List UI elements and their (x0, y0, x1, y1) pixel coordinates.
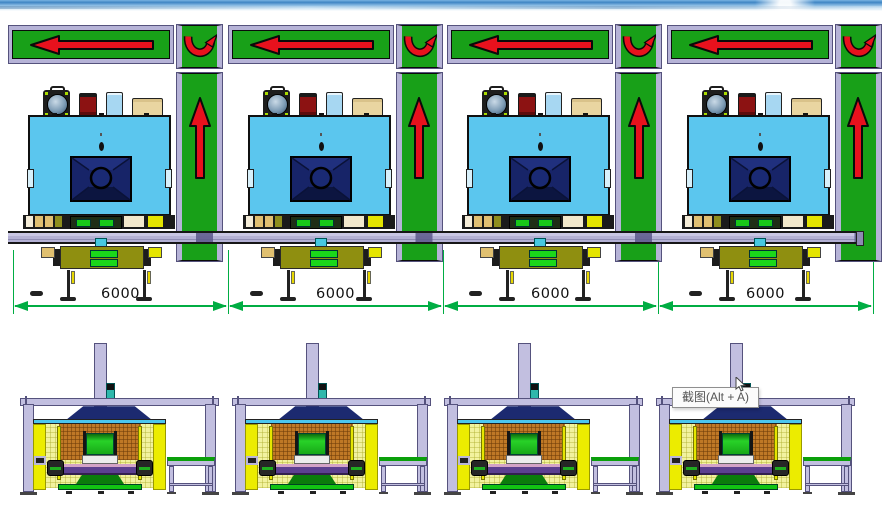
base-foot (552, 491, 558, 494)
base-block (484, 216, 492, 227)
base-center-module (729, 216, 781, 229)
equipment-row (43, 87, 175, 118)
machine-base-band (462, 215, 614, 229)
machine-top-tab (491, 113, 496, 116)
base-foot (734, 491, 740, 494)
base-foot (340, 491, 346, 494)
table-leg (844, 466, 849, 492)
table-leg (169, 466, 174, 492)
table-belt (591, 457, 639, 466)
machine-top-tab (364, 113, 369, 116)
hopper-wedge (278, 405, 364, 420)
gantry-beam (232, 398, 431, 406)
sensor-dot (538, 142, 543, 151)
return-conveyor (667, 25, 833, 64)
machine-body (28, 115, 171, 216)
gantry-foot-left (656, 492, 673, 495)
drive-cylinder-left (471, 460, 488, 476)
green-indicator (76, 219, 91, 227)
base-conveyor (270, 484, 354, 490)
u-turn-arrow-icon (621, 31, 656, 63)
dimension-label: 6000 (443, 286, 658, 303)
table-foot (630, 492, 639, 494)
work-platform (506, 455, 542, 464)
sensor-dot (758, 142, 763, 151)
dimension-line (660, 305, 871, 307)
pump-leds (484, 92, 487, 95)
base-block (714, 216, 721, 227)
base-block (45, 216, 53, 227)
base-block (124, 216, 144, 227)
table-belt (167, 457, 215, 466)
work-platform (294, 455, 330, 464)
base-block (494, 216, 501, 227)
gantry-machine-unit (20, 343, 220, 497)
u-turn-station (397, 25, 442, 68)
gantry-foot-left (444, 492, 461, 495)
arrow-left-icon (464, 33, 596, 57)
side-block-left (41, 247, 55, 258)
table-foot (842, 492, 851, 494)
return-conveyor (447, 25, 613, 64)
base-foot (66, 491, 72, 494)
hmi-panel (246, 456, 258, 465)
gantry-beam (444, 398, 643, 406)
base-block (694, 216, 702, 227)
pump-leds (265, 92, 268, 95)
conveyor-belt (12, 30, 170, 59)
base-block (704, 216, 712, 227)
base-hopper (500, 475, 548, 484)
enclosure-top-rail (669, 419, 802, 424)
hopper-wedge (490, 405, 576, 420)
carrier-assembly (719, 246, 803, 269)
equipment-row (702, 87, 834, 118)
machine-base-band (682, 215, 834, 229)
table-crossbar (381, 483, 425, 486)
transfer-rail (8, 231, 864, 244)
side-block-right (148, 247, 162, 258)
enclosure-frame-right (153, 424, 166, 490)
green-indicator (296, 219, 311, 227)
door-handle-right (385, 169, 392, 188)
base-block (807, 216, 822, 227)
machine-top-tab (803, 113, 808, 116)
table-leg (632, 466, 637, 492)
equipment-row (482, 87, 614, 118)
mouse-cursor-icon (735, 377, 746, 392)
work-platform (718, 455, 754, 464)
machine-window-panel (70, 156, 132, 202)
base-conveyor (58, 484, 142, 490)
base-foot (310, 491, 316, 494)
carriage-beam (268, 464, 356, 475)
table-foot (167, 492, 176, 494)
roll-post-right (114, 431, 117, 458)
machine-top-tab (99, 113, 104, 116)
outfeed-table (167, 457, 215, 494)
green-plate (749, 250, 777, 258)
door-handle-left (466, 169, 473, 188)
conveyor-belt (232, 30, 390, 59)
base-block (148, 216, 163, 227)
pump-leds (45, 92, 48, 95)
green-plate (310, 250, 338, 258)
machine-top-tab (272, 113, 277, 116)
machine-window-panel (290, 156, 352, 202)
carrier-assembly (499, 246, 583, 269)
base-block (563, 216, 583, 227)
belt-roll (86, 433, 114, 455)
machine-window-panel (509, 156, 571, 202)
side-block-left (261, 247, 275, 258)
base-hopper (288, 475, 336, 484)
base-block (685, 216, 692, 227)
table-belt (803, 457, 851, 466)
drive-cylinder-left (683, 460, 700, 476)
enclosure-top-rail (33, 419, 166, 424)
base-block (255, 216, 263, 227)
base-block (35, 216, 43, 227)
table-belt (379, 457, 427, 466)
drive-cylinder-right (348, 460, 365, 476)
gantry-line-row (20, 343, 880, 498)
carriage-beam (692, 464, 780, 475)
pump-dial (267, 94, 288, 115)
base-foot (490, 491, 496, 494)
machine-top-tab (711, 113, 716, 116)
side-block-left (480, 247, 494, 258)
outfeed-table (591, 457, 639, 494)
green-plate (90, 259, 118, 267)
side-block-right (587, 247, 601, 258)
base-foot (702, 491, 708, 494)
table-leg (805, 466, 810, 492)
pump-dial (706, 94, 727, 115)
sensor-dot (319, 142, 324, 151)
u-turn-arrow-icon (402, 31, 437, 63)
base-block (55, 216, 62, 227)
carrier-assembly (60, 246, 144, 269)
table-crossbar (805, 483, 849, 486)
u-turn-arrow-icon (182, 31, 217, 63)
base-block (275, 216, 282, 227)
dimension-label: 6000 (658, 286, 873, 303)
table-leg (420, 466, 425, 492)
green-indicator (515, 219, 530, 227)
dimension-label: 6000 (228, 286, 443, 303)
u-turn-station (836, 25, 881, 68)
equipment-row (263, 87, 395, 118)
pump-leds (704, 92, 707, 95)
machine-body (248, 115, 391, 216)
dimension-line (445, 305, 656, 307)
gantry-machine-unit (232, 343, 432, 497)
roll-post-right (538, 431, 541, 458)
u-turn-station (616, 25, 661, 68)
door-handle-right (824, 169, 831, 188)
base-hopper (76, 475, 124, 484)
base-hopper (712, 475, 760, 484)
table-crossbar (593, 483, 637, 486)
base-center-module (290, 216, 342, 229)
gantry-foot-left (232, 492, 249, 495)
enclosure-top-rail (457, 419, 590, 424)
base-conveyor (482, 484, 566, 490)
green-indicator (319, 219, 334, 227)
arrow-left-icon (684, 33, 816, 57)
roll-post-right (326, 431, 329, 458)
gantry-beam (20, 398, 219, 406)
sky-banner (0, 0, 882, 11)
carriage-beam (56, 464, 144, 475)
arrow-left-icon (25, 33, 157, 57)
base-block (246, 216, 253, 227)
door-handle-left (27, 169, 34, 188)
machine-top-tab (583, 113, 588, 116)
base-block (474, 216, 482, 227)
hopper-wedge (66, 405, 152, 420)
drive-cylinder-left (259, 460, 276, 476)
machine-top-tab (144, 113, 149, 116)
carrier-assembly (280, 246, 364, 269)
side-block-right (368, 247, 382, 258)
side-block-left (700, 247, 714, 258)
pump-dial (47, 94, 68, 115)
base-conveyor (694, 484, 778, 490)
gantry-machine-unit (656, 343, 856, 497)
return-conveyor (8, 25, 174, 64)
belt-roll (298, 433, 326, 455)
enclosure-top-rail (245, 419, 378, 424)
drive-cylinder-left (47, 460, 64, 476)
table-leg (208, 466, 213, 492)
table-crossbar (169, 483, 213, 486)
machine-body (467, 115, 610, 216)
belt-roll (510, 433, 538, 455)
conveyor-belt (451, 30, 609, 59)
green-plate (529, 259, 557, 267)
hmi-panel (670, 456, 682, 465)
base-foot (128, 491, 134, 494)
arrow-up-icon (406, 94, 432, 182)
base-block (587, 216, 602, 227)
enclosure-frame-right (365, 424, 378, 490)
arrow-up-icon (626, 94, 652, 182)
table-foot (418, 492, 427, 494)
roll-post-right (750, 431, 753, 458)
green-plate (310, 259, 338, 267)
table-foot (591, 492, 600, 494)
table-leg (593, 466, 598, 492)
base-block (465, 216, 472, 227)
green-indicator (735, 219, 750, 227)
machine-top-tab (52, 113, 57, 116)
dimension-line (15, 305, 226, 307)
dimension-label: 6000 (13, 286, 228, 303)
side-block-right (807, 247, 821, 258)
u-turn-arrow-icon (841, 31, 876, 63)
machine-window-panel (729, 156, 791, 202)
base-foot (522, 491, 528, 494)
door-handle-left (247, 169, 254, 188)
green-indicator (99, 219, 114, 227)
base-foot (278, 491, 284, 494)
door-handle-left (686, 169, 693, 188)
door-handle-right (165, 169, 172, 188)
door-handle-right (604, 169, 611, 188)
work-platform (82, 455, 118, 464)
pump-dial (486, 94, 507, 115)
conveyor-belt (671, 30, 829, 59)
machine-base-band (243, 215, 395, 229)
machine-top-tab (319, 113, 324, 116)
drive-cylinder-right (772, 460, 789, 476)
gantry-machine-unit (444, 343, 644, 497)
base-block (783, 216, 803, 227)
hmi-panel (458, 456, 470, 465)
machine-top-tab (538, 113, 543, 116)
table-foot (379, 492, 388, 494)
belt-roll (722, 433, 750, 455)
base-block (368, 216, 383, 227)
outfeed-table (803, 457, 851, 494)
base-foot (764, 491, 770, 494)
u-turn-station (177, 25, 222, 68)
drive-cylinder-right (560, 460, 577, 476)
base-foot (98, 491, 104, 494)
layout-drawing: 6000 6000 6000 6000 (0, 0, 882, 510)
sensor-dot (99, 142, 104, 151)
green-plate (529, 250, 557, 258)
hmi-panel (34, 456, 46, 465)
arrow-up-icon (845, 94, 871, 182)
table-leg (381, 466, 386, 492)
green-plate (90, 250, 118, 258)
carriage-beam (480, 464, 568, 475)
machine-body (687, 115, 830, 216)
base-block (344, 216, 364, 227)
base-center-module (509, 216, 561, 229)
dimension-line (230, 305, 441, 307)
table-foot (803, 492, 812, 494)
return-conveyor (228, 25, 394, 64)
base-block (265, 216, 273, 227)
enclosure-frame-right (789, 424, 802, 490)
green-indicator (758, 219, 773, 227)
green-plate (749, 259, 777, 267)
green-indicator (538, 219, 553, 227)
table-foot (206, 492, 215, 494)
machine-top-tab (758, 113, 763, 116)
drive-cylinder-right (136, 460, 153, 476)
arrow-left-icon (245, 33, 377, 57)
machine-base-band (23, 215, 175, 229)
enclosure-frame-right (577, 424, 590, 490)
gantry-foot-left (20, 492, 37, 495)
outfeed-table (379, 457, 427, 494)
arrow-up-icon (187, 94, 213, 182)
base-center-module (70, 216, 122, 229)
base-block (26, 216, 33, 227)
